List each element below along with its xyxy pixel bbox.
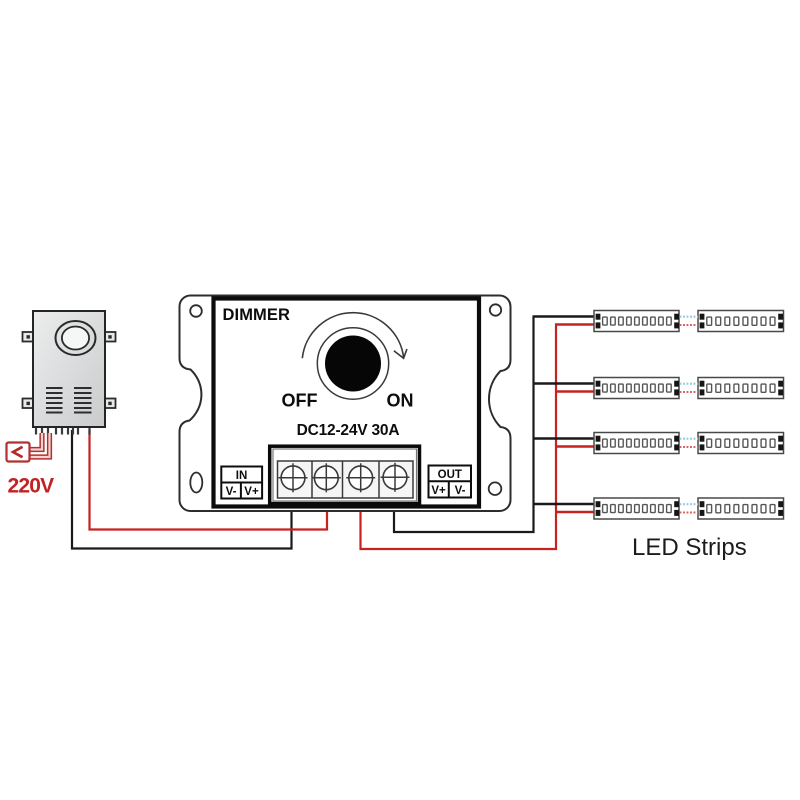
svg-text:220V: 220V — [8, 475, 55, 498]
svg-text:ON: ON — [387, 391, 414, 411]
svg-text:OUT: OUT — [438, 469, 462, 481]
svg-text:DC12-24V 30A: DC12-24V 30A — [297, 422, 400, 439]
svg-text:IN: IN — [236, 470, 248, 482]
svg-text:V-: V- — [226, 486, 237, 498]
svg-text:LED Strips: LED Strips — [632, 534, 747, 561]
svg-text:V+: V+ — [431, 485, 446, 497]
svg-text:DIMMER: DIMMER — [223, 306, 291, 324]
svg-text:V+: V+ — [244, 486, 259, 498]
svg-text:OFF: OFF — [282, 391, 318, 411]
svg-text:V-: V- — [455, 485, 466, 497]
